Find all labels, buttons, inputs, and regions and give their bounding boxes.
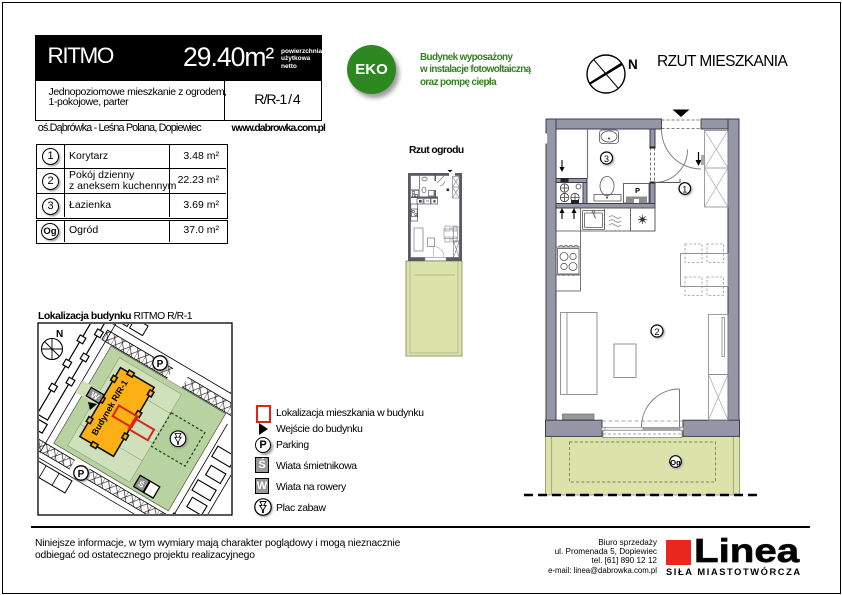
svg-text:N: N [56, 329, 63, 340]
svg-text:P: P [635, 186, 640, 195]
svg-text:P: P [78, 469, 85, 480]
svg-text:Og: Og [670, 458, 681, 467]
svg-text:3: 3 [604, 154, 609, 164]
svg-text:1: 1 [682, 184, 687, 194]
svg-text:P: P [157, 359, 164, 370]
svg-text:2: 2 [654, 327, 659, 337]
